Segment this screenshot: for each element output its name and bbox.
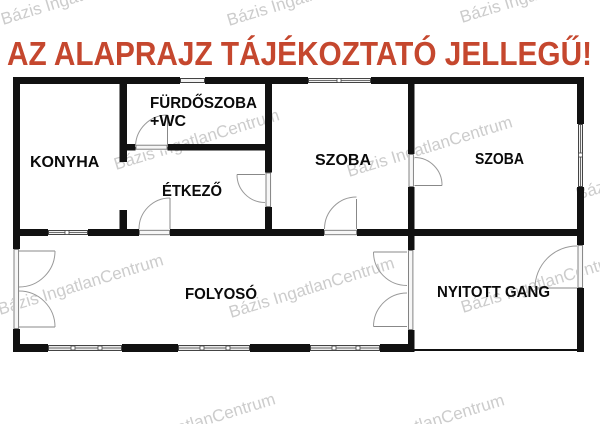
svg-text:+WC: +WC: [150, 113, 186, 130]
svg-text:KONYHA: KONYHA: [30, 154, 100, 171]
svg-text:NYITOTT GANG: NYITOTT GANG: [437, 284, 550, 301]
svg-text:ÉTKEZŐ: ÉTKEZŐ: [162, 181, 222, 200]
svg-text:AZ ALAPRAJZ TÁJÉKOZTATÓ JELLEG: AZ ALAPRAJZ TÁJÉKOZTATÓ JELLEGŰ!: [7, 35, 592, 72]
svg-text:FÜRDŐSZOBA: FÜRDŐSZOBA: [150, 93, 257, 112]
svg-text:SZOBA: SZOBA: [315, 152, 371, 169]
svg-text:FOLYOSÓ: FOLYOSÓ: [185, 284, 257, 303]
svg-text:SZOBA: SZOBA: [475, 151, 524, 168]
